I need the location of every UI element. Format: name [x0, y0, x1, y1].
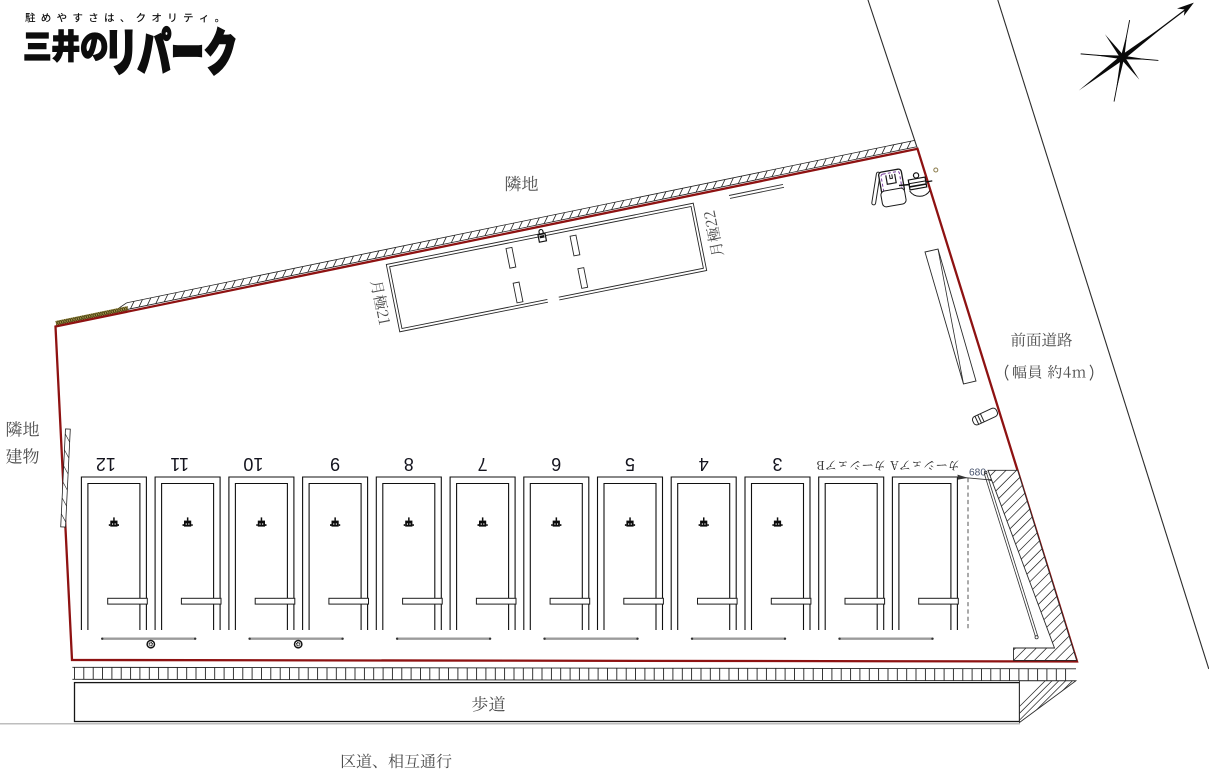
svg-text:11: 11 [170, 454, 189, 474]
svg-text:7: 7 [478, 454, 488, 474]
svg-text:3: 3 [772, 454, 782, 474]
svg-text:10: 10 [243, 454, 263, 474]
svg-text:4: 4 [699, 454, 709, 474]
svg-text:5: 5 [625, 454, 635, 474]
svg-text:9: 9 [330, 454, 340, 474]
svg-text:12: 12 [96, 454, 116, 474]
svg-text:8: 8 [404, 454, 414, 474]
svg-text:680: 680 [969, 467, 986, 478]
svg-text:6: 6 [551, 454, 561, 474]
